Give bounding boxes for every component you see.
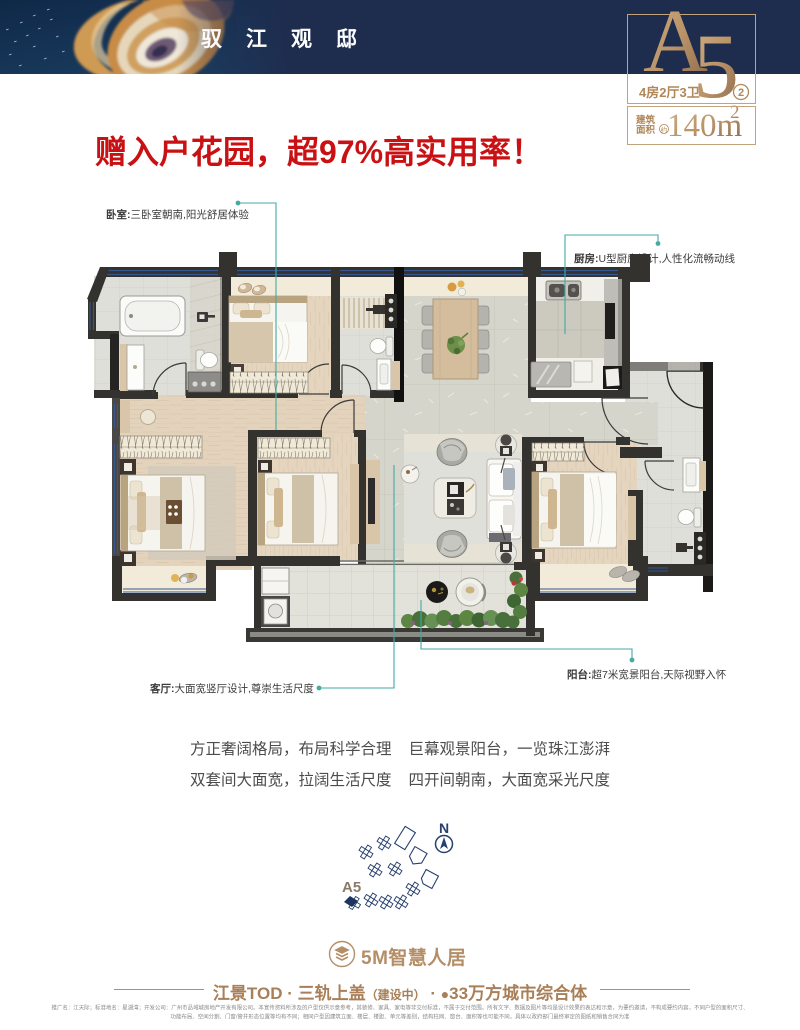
svg-text:N: N bbox=[439, 820, 449, 836]
svg-text:A5: A5 bbox=[342, 879, 361, 896]
